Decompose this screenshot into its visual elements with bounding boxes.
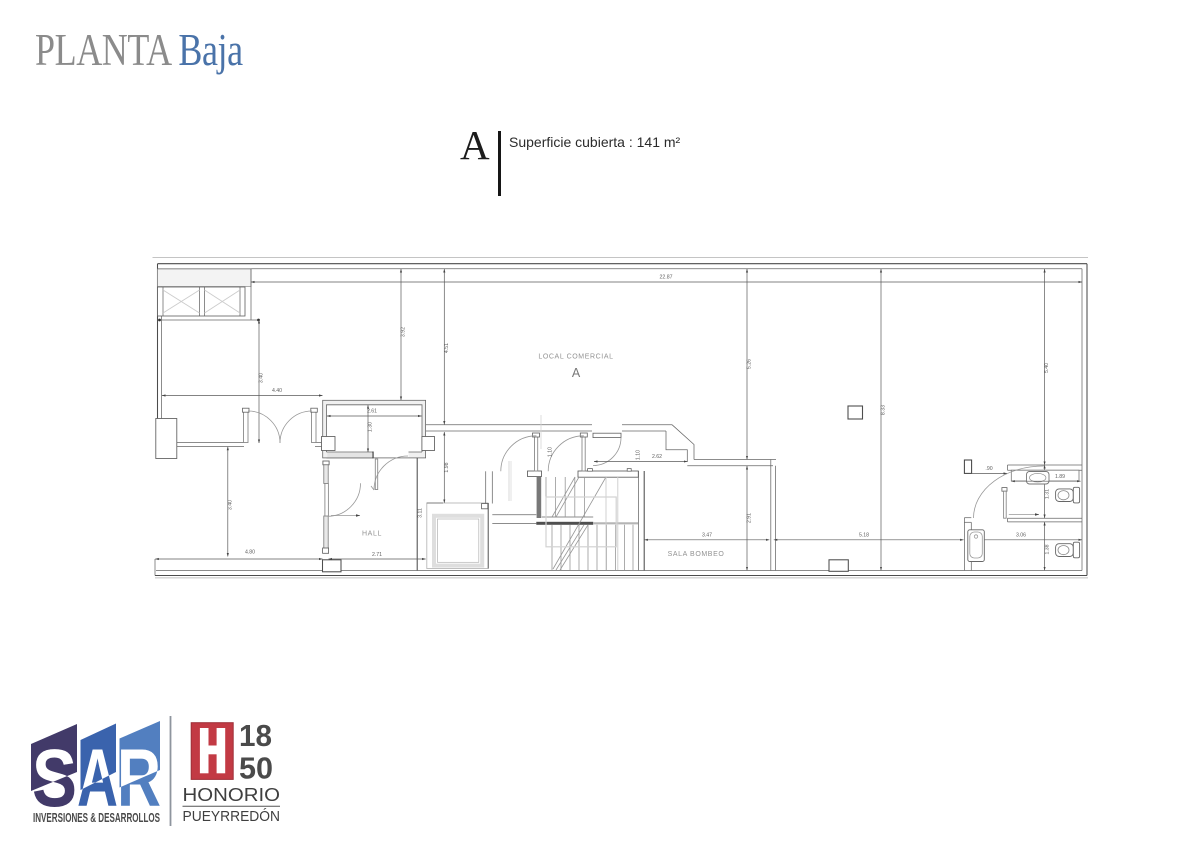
svg-text:3.06: 3.06 [1016,532,1026,538]
svg-text:1.38: 1.38 [1044,544,1050,554]
svg-text:4.80: 4.80 [245,550,255,556]
svg-text:SALA BOMBEO: SALA BOMBEO [668,551,725,558]
svg-text:2.91: 2.91 [747,513,753,523]
svg-text:PUEYRREDÓN: PUEYRREDÓN [183,808,281,825]
svg-text:5.18: 5.18 [859,532,869,538]
svg-text:50: 50 [239,751,273,786]
svg-text:LOCAL COMERCIAL: LOCAL COMERCIAL [538,354,613,361]
svg-text:5.26: 5.26 [747,359,753,369]
svg-text:2.61: 2.61 [367,409,377,415]
svg-text:.90: .90 [985,466,992,472]
svg-text:INVERSIONES & DESARROLLOS: INVERSIONES & DESARROLLOS [33,810,160,825]
svg-text:18: 18 [239,718,272,753]
svg-text:HALL: HALL [362,531,382,538]
svg-text:4.51: 4.51 [444,343,450,353]
svg-text:1.98: 1.98 [444,462,450,472]
svg-text:2.62: 2.62 [652,454,662,460]
svg-text:3.40: 3.40 [259,373,265,383]
svg-text:3.11: 3.11 [417,508,423,518]
svg-text:3.92: 3.92 [401,327,407,337]
svg-text:1.10: 1.10 [636,450,642,460]
svg-text:1.89: 1.89 [1055,474,1065,480]
svg-text:2.71: 2.71 [372,552,382,558]
svg-text:1.31: 1.31 [1044,489,1050,499]
svg-text:1.10: 1.10 [548,447,554,457]
svg-text:8.33: 8.33 [881,405,887,415]
svg-text:4.40: 4.40 [272,388,282,394]
svg-text:3.40: 3.40 [227,500,233,510]
svg-text:22.87: 22.87 [660,275,673,281]
svg-text:A: A [572,366,581,380]
svg-text:3.47: 3.47 [702,532,712,538]
svg-text:1.30: 1.30 [368,422,374,432]
svg-text:5.40: 5.40 [1044,363,1050,373]
svg-text:HONORIO: HONORIO [183,784,281,805]
